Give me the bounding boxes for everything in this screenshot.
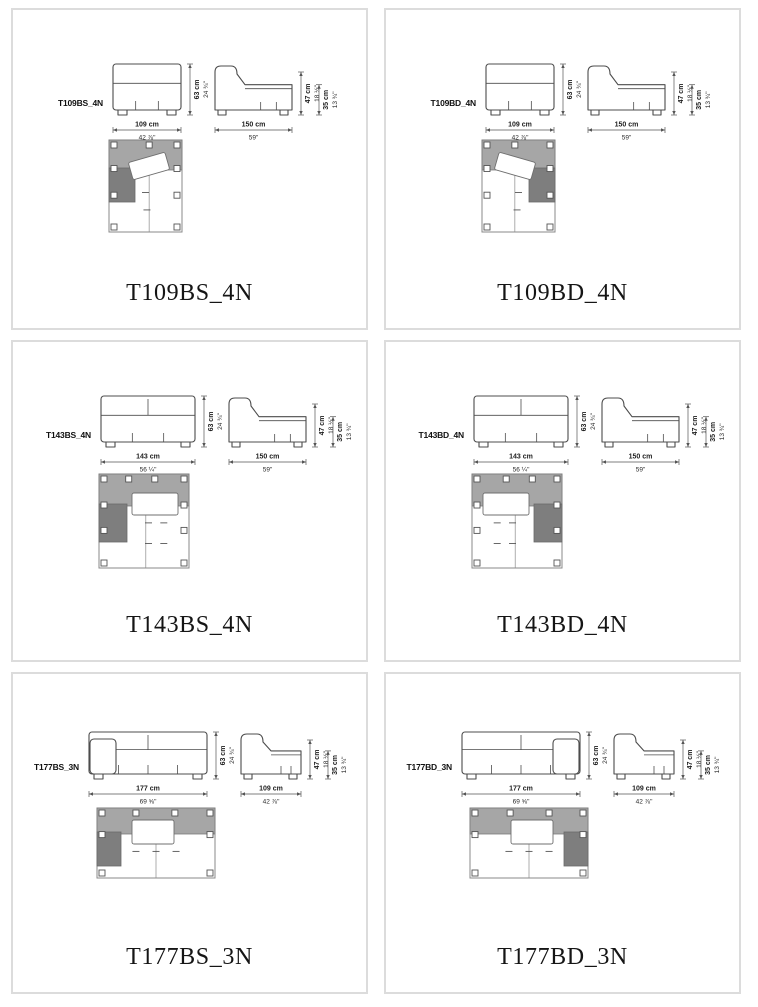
model-code-label: T143BS_4N xyxy=(46,430,91,440)
svg-text:24 ¾": 24 ¾" xyxy=(576,80,583,97)
front-view xyxy=(474,396,568,447)
dimension-vertical: 47 cm 18 ½" xyxy=(312,404,335,447)
svg-text:47 cm: 47 cm xyxy=(314,750,321,770)
svg-text:63 cm: 63 cm xyxy=(208,412,215,432)
svg-text:150 cm: 150 cm xyxy=(629,454,653,461)
model-code-label: T109BS_4N xyxy=(58,98,103,108)
product-code-caption: T143BD_4N xyxy=(497,612,628,639)
svg-text:35 cm: 35 cm xyxy=(323,90,330,110)
dimension-horizontal: 150 cm 59" xyxy=(215,122,292,142)
svg-text:47 cm: 47 cm xyxy=(678,84,685,104)
svg-text:63 cm: 63 cm xyxy=(567,80,574,100)
dimension-horizontal: 150 cm 59" xyxy=(588,122,665,142)
technical-drawing-t177bs: T177BS_3N 63 cm 24 ¾" 177 cm 69 ⅝" 109 c… xyxy=(13,674,366,906)
svg-text:150 cm: 150 cm xyxy=(615,122,639,129)
dimension-vertical: 63 cm 24 ¾" xyxy=(213,732,236,779)
catalog-page: T109BS_4N 63 cm 24 ¾" 109 cm 42 ⅞" 150 c… xyxy=(0,0,758,1002)
svg-text:109 cm: 109 cm xyxy=(135,122,159,129)
front-view xyxy=(462,732,580,779)
svg-text:35 cm: 35 cm xyxy=(710,422,717,442)
model-code-label: T109BD_4N xyxy=(431,98,477,108)
svg-text:35 cm: 35 cm xyxy=(705,755,712,775)
svg-text:59": 59" xyxy=(263,467,273,474)
front-view xyxy=(486,64,554,115)
side-view xyxy=(215,66,292,115)
dimension-horizontal: 177 cm 69 ⅝" xyxy=(462,786,580,806)
svg-text:47 cm: 47 cm xyxy=(319,416,326,436)
side-view xyxy=(229,398,306,447)
svg-text:69 ⅝": 69 ⅝" xyxy=(140,799,157,806)
plan-view xyxy=(109,140,182,232)
svg-text:13 ¾": 13 ¾" xyxy=(705,91,712,108)
svg-text:42 ⅞": 42 ⅞" xyxy=(263,799,280,806)
svg-text:59": 59" xyxy=(622,135,632,142)
svg-text:47 cm: 47 cm xyxy=(692,416,699,436)
svg-text:24 ¾": 24 ¾" xyxy=(602,746,609,763)
svg-text:177 cm: 177 cm xyxy=(509,786,533,793)
dimension-horizontal: 109 cm 42 ⅞" xyxy=(614,786,674,806)
svg-text:63 cm: 63 cm xyxy=(220,746,227,766)
svg-text:13 ¾": 13 ¾" xyxy=(332,91,339,108)
product-code-caption: T143BS_4N xyxy=(126,612,253,639)
dimension-vertical: 63 cm 24 ¾" xyxy=(586,732,609,779)
svg-text:13 ¾": 13 ¾" xyxy=(714,756,721,773)
svg-text:150 cm: 150 cm xyxy=(242,122,266,129)
dimension-horizontal: 177 cm 69 ⅝" xyxy=(89,786,207,806)
dimension-vertical: 47 cm 18 ½" xyxy=(680,740,703,779)
svg-text:109 cm: 109 cm xyxy=(632,786,656,793)
svg-text:59": 59" xyxy=(636,467,646,474)
plan-view xyxy=(470,808,588,878)
svg-text:59": 59" xyxy=(249,135,259,142)
svg-text:24 ¾": 24 ¾" xyxy=(590,412,597,429)
dimension-vertical: 63 cm 24 ¾" xyxy=(187,64,210,115)
svg-text:24 ¾": 24 ¾" xyxy=(229,746,236,763)
dimension-horizontal: 143 cm 56 ¼" xyxy=(474,454,568,474)
plan-view xyxy=(482,140,555,232)
dimension-vertical: 63 cm 24 ¾" xyxy=(560,64,583,115)
svg-text:177 cm: 177 cm xyxy=(136,786,160,793)
front-view xyxy=(101,396,195,447)
technical-drawing-t109bd: T109BD_4N 63 cm 24 ¾" 109 cm 42 ⅞" 150 c… xyxy=(386,10,739,242)
svg-text:13 ¾": 13 ¾" xyxy=(719,423,726,440)
svg-text:47 cm: 47 cm xyxy=(305,84,312,104)
plan-view xyxy=(99,474,189,568)
svg-text:69 ⅝": 69 ⅝" xyxy=(513,799,530,806)
dimension-vertical: 47 cm 18 ½" xyxy=(685,404,708,447)
side-view xyxy=(588,66,665,115)
svg-text:63 cm: 63 cm xyxy=(593,746,600,766)
svg-text:56 ¼": 56 ¼" xyxy=(140,467,157,474)
product-cell-t109bs: T109BS_4N 63 cm 24 ¾" 109 cm 42 ⅞" 150 c… xyxy=(11,8,368,330)
svg-text:143 cm: 143 cm xyxy=(509,454,533,461)
svg-text:56 ¼": 56 ¼" xyxy=(513,467,530,474)
technical-drawing-t143bd: T143BD_4N 63 cm 24 ¾" 143 cm 56 ¼" 150 c… xyxy=(386,342,739,574)
product-cell-t177bs: T177BS_3N 63 cm 24 ¾" 177 cm 69 ⅝" 109 c… xyxy=(11,672,368,994)
dimension-horizontal: 109 cm 42 ⅞" xyxy=(241,786,301,806)
svg-text:13 ¾": 13 ¾" xyxy=(346,423,353,440)
dimension-vertical: 47 cm 18 ½" xyxy=(298,72,321,115)
svg-text:13 ¾": 13 ¾" xyxy=(341,756,348,773)
side-view xyxy=(602,398,679,447)
svg-text:35 cm: 35 cm xyxy=(332,755,339,775)
product-cell-t177bd: T177BD_3N 63 cm 24 ¾" 177 cm 69 ⅝" 109 c… xyxy=(384,672,741,994)
product-code-caption: T177BD_3N xyxy=(497,944,628,971)
svg-text:35 cm: 35 cm xyxy=(337,422,344,442)
product-cell-t143bd: T143BD_4N 63 cm 24 ¾" 143 cm 56 ¼" 150 c… xyxy=(384,340,741,662)
front-view xyxy=(113,64,181,115)
dimension-horizontal: 109 cm 42 ⅞" xyxy=(486,122,554,142)
svg-text:24 ¾": 24 ¾" xyxy=(217,412,224,429)
model-code-label: T143BD_4N xyxy=(419,430,465,440)
svg-text:143 cm: 143 cm xyxy=(136,454,160,461)
product-code-caption: T177BS_3N xyxy=(126,944,253,971)
plan-view xyxy=(97,808,215,878)
svg-text:42 ⅞": 42 ⅞" xyxy=(636,799,653,806)
product-code-caption: T109BS_4N xyxy=(126,280,253,307)
model-code-label: T177BS_3N xyxy=(34,762,79,772)
svg-text:63 cm: 63 cm xyxy=(581,412,588,432)
dimension-horizontal: 143 cm 56 ¼" xyxy=(101,454,195,474)
model-code-label: T177BD_3N xyxy=(407,762,453,772)
technical-drawing-t143bs: T143BS_4N 63 cm 24 ¾" 143 cm 56 ¼" 150 c… xyxy=(13,342,366,574)
svg-text:150 cm: 150 cm xyxy=(256,454,280,461)
svg-text:63 cm: 63 cm xyxy=(194,80,201,100)
technical-drawing-t109bs: T109BS_4N 63 cm 24 ¾" 109 cm 42 ⅞" 150 c… xyxy=(13,10,366,242)
technical-drawing-t177bd: T177BD_3N 63 cm 24 ¾" 177 cm 69 ⅝" 109 c… xyxy=(386,674,739,906)
svg-text:47 cm: 47 cm xyxy=(687,750,694,770)
svg-text:35 cm: 35 cm xyxy=(696,90,703,110)
dimension-vertical: 63 cm 24 ¾" xyxy=(201,396,224,447)
dimension-vertical: 47 cm 18 ½" xyxy=(671,72,694,115)
dimension-vertical: 63 cm 24 ¾" xyxy=(574,396,597,447)
product-cell-t143bs: T143BS_4N 63 cm 24 ¾" 143 cm 56 ¼" 150 c… xyxy=(11,340,368,662)
catalog-grid: T109BS_4N 63 cm 24 ¾" 109 cm 42 ⅞" 150 c… xyxy=(11,8,747,994)
dimension-horizontal: 109 cm 42 ⅞" xyxy=(113,122,181,142)
dimension-horizontal: 150 cm 59" xyxy=(602,454,679,474)
svg-text:109 cm: 109 cm xyxy=(508,122,532,129)
plan-view xyxy=(472,474,562,568)
dimension-horizontal: 150 cm 59" xyxy=(229,454,306,474)
svg-text:109 cm: 109 cm xyxy=(259,786,283,793)
svg-text:24 ¾": 24 ¾" xyxy=(203,80,210,97)
side-view xyxy=(241,734,301,779)
side-view xyxy=(614,734,674,779)
product-cell-t109bd: T109BD_4N 63 cm 24 ¾" 109 cm 42 ⅞" 150 c… xyxy=(384,8,741,330)
product-code-caption: T109BD_4N xyxy=(497,280,628,307)
dimension-vertical: 47 cm 18 ½" xyxy=(307,740,330,779)
front-view xyxy=(89,732,207,779)
